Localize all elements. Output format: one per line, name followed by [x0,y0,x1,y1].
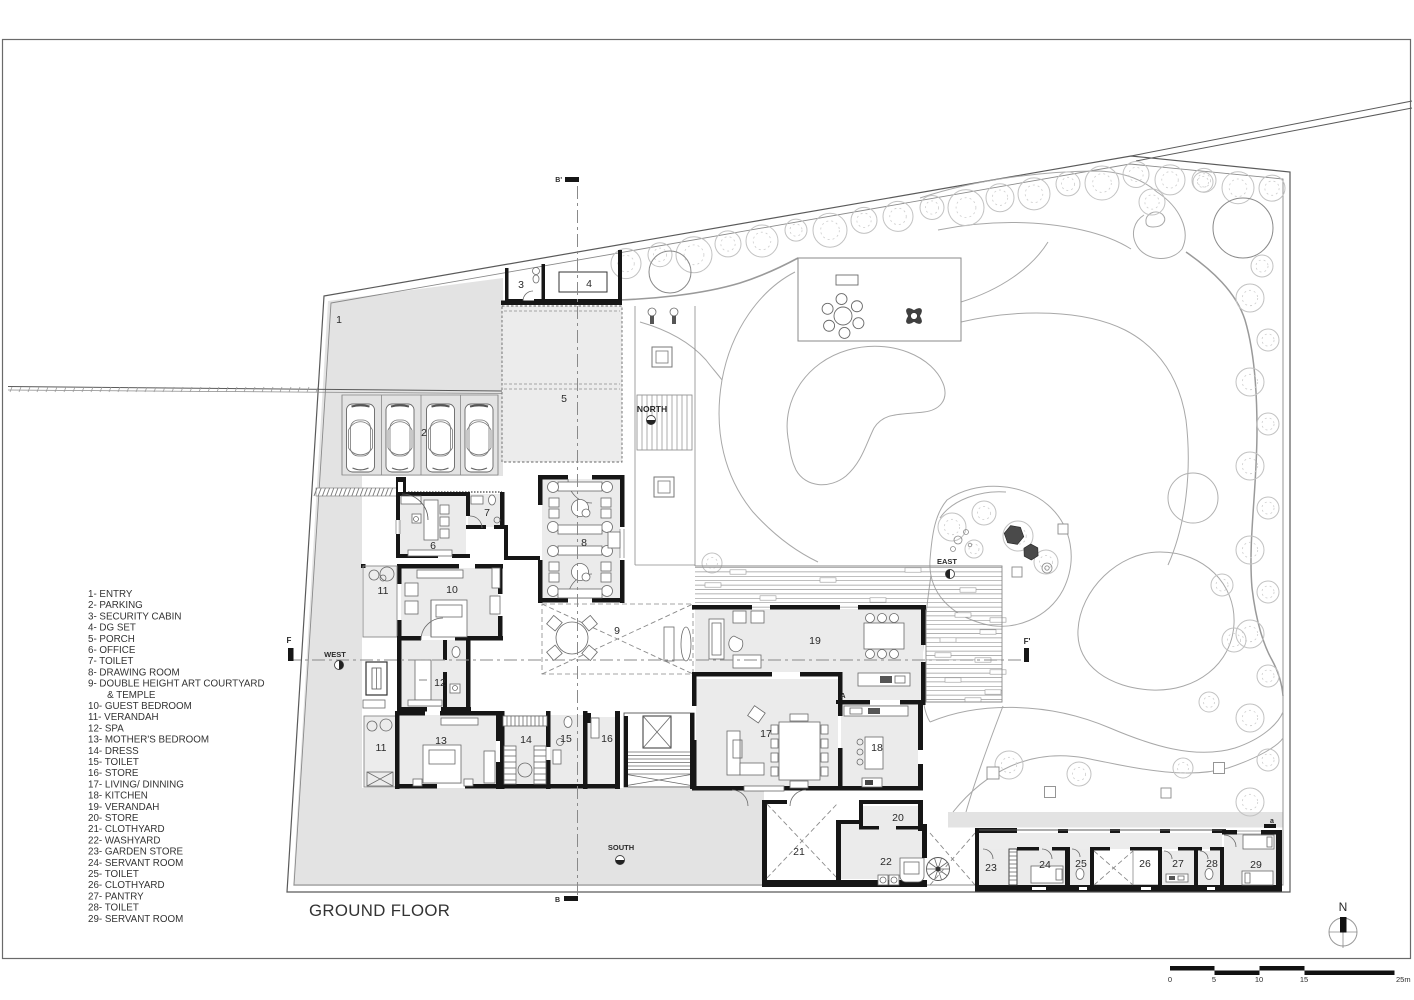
svg-text:& TEMPLE: & TEMPLE [99,690,156,701]
svg-text:21- CLOTHYARD: 21- CLOTHYARD [88,824,165,835]
svg-text:22- WASHYARD: 22- WASHYARD [88,835,160,846]
svg-text:SOUTH: SOUTH [608,843,634,852]
svg-text:F': F' [1024,637,1031,646]
svg-text:2: 2 [421,427,427,439]
svg-text:15: 15 [1300,975,1308,984]
svg-text:25m: 25m [1396,975,1411,984]
svg-text:25- TOILET: 25- TOILET [88,869,139,880]
svg-text:12- SPA: 12- SPA [88,723,124,734]
svg-text:EAST: EAST [937,557,957,566]
svg-text:20: 20 [892,812,904,824]
svg-text:21: 21 [793,846,805,858]
svg-text:17: 17 [760,728,772,740]
svg-text:26- CLOTHYARD: 26- CLOTHYARD [88,880,165,891]
svg-text:14- DRESS: 14- DRESS [88,746,139,757]
svg-text:16: 16 [601,733,613,745]
svg-text:1: 1 [336,314,342,326]
svg-text:8- DRAWING ROOM: 8- DRAWING ROOM [88,667,180,678]
svg-text:7- TOILET: 7- TOILET [88,656,133,667]
svg-text:23- GARDEN STORE: 23- GARDEN STORE [88,847,184,858]
svg-text:3- SECURITY CABIN: 3- SECURITY CABIN [88,611,181,622]
svg-text:23: 23 [985,862,997,874]
svg-text:9- DOUBLE HEIGHT ART COURTYARD: 9- DOUBLE HEIGHT ART COURTYARD [88,679,265,690]
svg-text:18- KITCHEN: 18- KITCHEN [88,791,148,802]
svg-text:18: 18 [871,742,883,754]
svg-text:13- MOTHER'S BEDROOM: 13- MOTHER'S BEDROOM [88,735,209,746]
svg-text:24- SERVANT ROOM: 24- SERVANT ROOM [88,858,183,869]
svg-text:GROUND FLOOR: GROUND FLOOR [309,901,450,920]
svg-text:9: 9 [614,625,620,637]
svg-text:10: 10 [446,584,458,596]
svg-text:17- LIVING/ DINNING: 17- LIVING/ DINNING [88,779,184,790]
svg-text:27: 27 [1172,858,1184,870]
svg-text:29- SERVANT ROOM: 29- SERVANT ROOM [88,914,183,925]
svg-text:11- VERANDAH: 11- VERANDAH [88,712,159,723]
svg-text:B: B [555,897,560,904]
svg-text:15- TOILET: 15- TOILET [88,757,139,768]
svg-text:a: a [1270,818,1274,825]
svg-text:29: 29 [1250,859,1262,871]
svg-text:27- PANTRY: 27- PANTRY [88,891,144,902]
svg-text:B': B' [555,177,562,184]
svg-text:5: 5 [561,393,567,405]
svg-text:6- OFFICE: 6- OFFICE [88,645,136,656]
svg-text:24: 24 [1039,859,1051,871]
svg-text:14: 14 [520,734,532,746]
svg-text:2- PARKING: 2- PARKING [88,600,143,611]
svg-text:22: 22 [880,856,892,868]
svg-text:15: 15 [560,733,572,745]
svg-text:11: 11 [376,742,387,754]
svg-text:28- TOILET: 28- TOILET [88,903,139,914]
svg-text:25: 25 [1075,858,1087,870]
svg-text:8: 8 [581,537,587,549]
svg-text:20- STORE: 20- STORE [88,813,139,824]
svg-text:0: 0 [1168,975,1172,984]
svg-text:7: 7 [484,507,490,519]
svg-text:11: 11 [378,585,389,597]
svg-text:4: 4 [586,278,592,290]
svg-text:5: 5 [1212,975,1216,984]
svg-text:10- GUEST BEDROOM: 10- GUEST BEDROOM [88,701,192,712]
svg-text:10: 10 [1255,975,1263,984]
svg-text:N: N [1339,900,1348,914]
svg-text:28: 28 [1206,858,1218,870]
svg-text:NORTH: NORTH [637,404,667,414]
svg-text:A: A [840,693,845,700]
svg-text:16- STORE: 16- STORE [88,768,139,779]
svg-text:1- ENTRY: 1- ENTRY [88,589,133,600]
svg-text:26: 26 [1139,858,1151,870]
svg-text:5- PORCH: 5- PORCH [88,634,135,645]
svg-text:WEST: WEST [324,650,346,659]
svg-text:19- VERANDAH: 19- VERANDAH [88,802,159,813]
svg-text:12: 12 [434,677,446,689]
svg-text:3: 3 [518,279,524,291]
svg-text:F: F [287,636,292,645]
svg-text:4- DG SET: 4- DG SET [88,623,136,634]
svg-text:19: 19 [809,635,821,647]
svg-text:13: 13 [435,735,447,747]
svg-text:6: 6 [430,540,436,552]
